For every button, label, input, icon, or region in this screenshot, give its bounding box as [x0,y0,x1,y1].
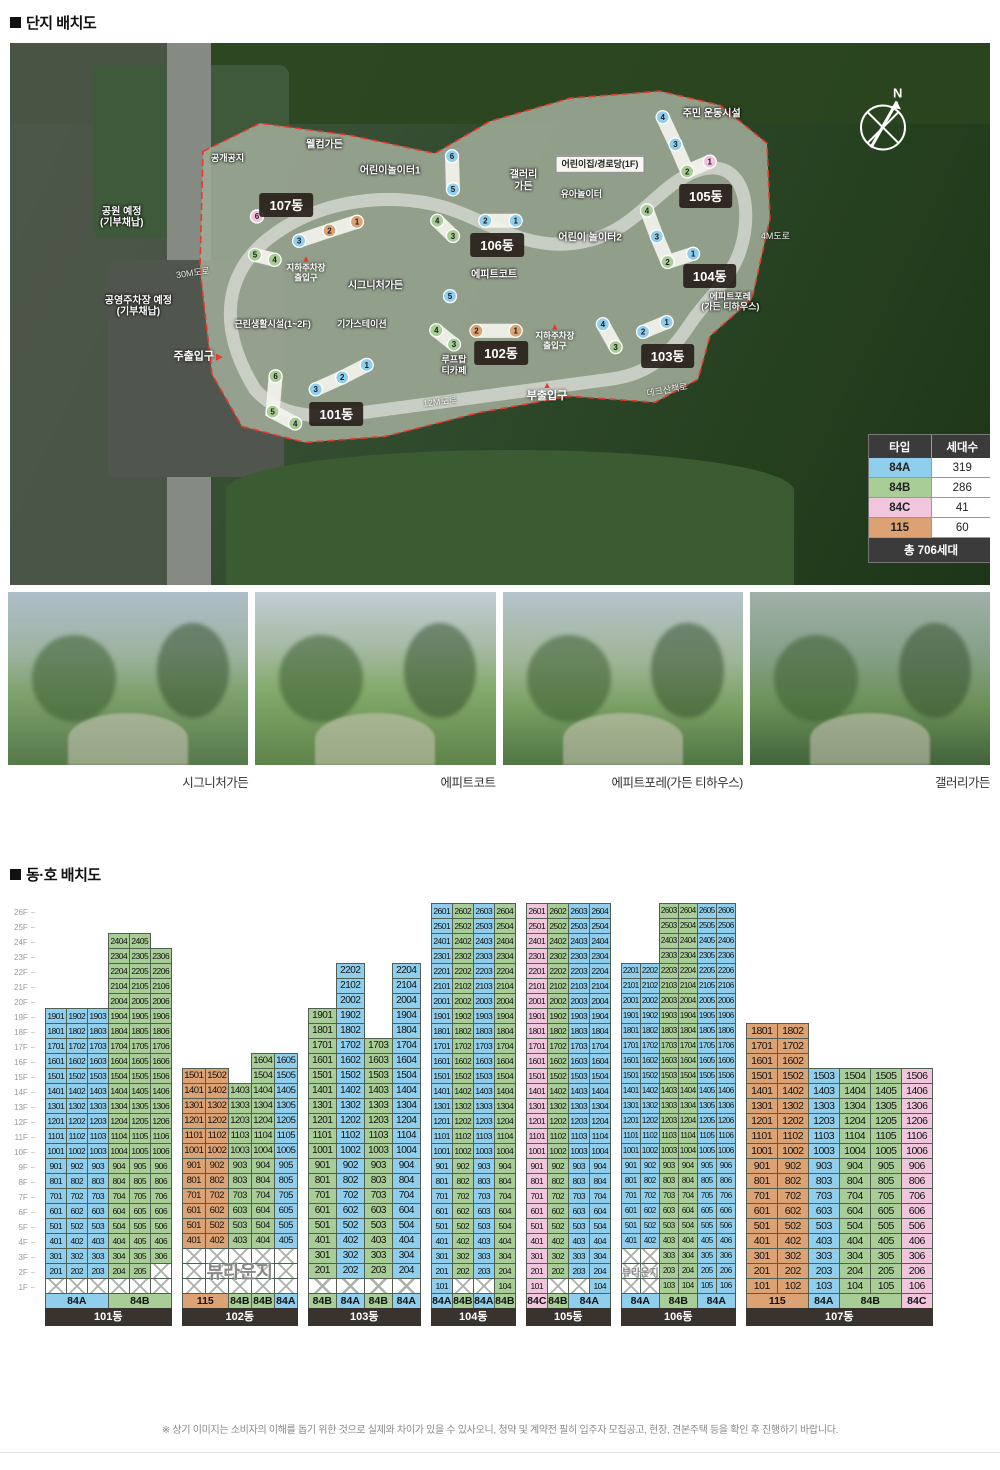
unit-cell: 1901 [526,1008,548,1024]
unit-cell: 301 [308,1248,337,1264]
unit-cell: 602 [547,1203,569,1219]
unit-cell: 1402 [336,1083,365,1099]
unit-cell: 1803 [473,1023,495,1039]
unit-cell: 1706 [716,1038,736,1054]
unit-cell: 1202 [547,1113,569,1129]
unit-cell: 803 [808,1173,840,1189]
unit-cell: 1106 [150,1128,172,1144]
unit-cell: 806 [716,1173,736,1189]
unit-cell: 1201 [45,1113,67,1129]
unit-cell: 1304 [108,1098,130,1114]
unit-cell: 1504 [251,1068,275,1084]
map-overlay-svg: 12365454321432143214321654321632154 [10,43,990,585]
unit-cell: 1904 [392,1008,421,1024]
unit-cell: 302 [452,1248,474,1264]
unit-cell: 1801 [526,1023,548,1039]
unit-cell: 1006 [901,1143,933,1159]
floor-axis-label: 16F [14,1055,35,1070]
svg-text:1: 1 [691,250,696,259]
svg-text:2: 2 [641,328,646,337]
unit-cell: 2504 [678,918,698,934]
unit-cell: 1503 [364,1068,393,1084]
unit-cell: 1802 [452,1023,474,1039]
unit-cell: 2004 [678,993,698,1009]
unit-cell: 905 [129,1158,151,1174]
unit-cell: 404 [589,1233,611,1249]
unit-cell: 501 [45,1218,67,1234]
unit-cell: 2503 [473,918,495,934]
empty-cell [870,1053,902,1069]
unit-cell: 202 [452,1263,474,1279]
unit-cell: 706 [901,1188,933,1204]
unit-cell: 303 [473,1248,495,1264]
unit-cell: 903 [364,1158,393,1174]
svg-text:3: 3 [297,237,302,246]
unit-cell: 1605 [697,1053,717,1069]
building-stack-106동: 2603260426052606250325042505250624032404… [621,903,736,1326]
unit-cell: 1601 [621,1053,641,1069]
unit-cell: 2002 [547,993,569,1009]
unit-cell: 802 [205,1173,229,1189]
unit-cell: 802 [777,1173,809,1189]
svg-text:1: 1 [513,217,518,226]
unit-cell: 1003 [808,1143,840,1159]
unit-cell: 1504 [678,1068,698,1084]
unit-cell: 1804 [108,1023,130,1039]
unit-cell: 1402 [66,1083,88,1099]
unit-cell: 1702 [452,1038,474,1054]
legend-total: 총 706세대 [869,537,990,562]
unit-cell: 304 [678,1248,698,1264]
empty-cell [66,993,88,1009]
unit-cell: 601 [308,1203,337,1219]
unit-cell: 1303 [228,1098,252,1114]
unit-cell: 2103 [659,978,679,994]
unit-cell: 1204 [678,1113,698,1129]
unit-cell: 1604 [392,1053,421,1069]
unit-cell: 802 [547,1173,569,1189]
unit-cell: 602 [777,1203,809,1219]
unit-cell: 1803 [568,1023,590,1039]
unit-cell: 402 [777,1233,809,1249]
unit-cell: 506 [716,1218,736,1234]
unit-cell: 803 [228,1173,252,1189]
building-badge-107동: 107동 [260,193,314,217]
unit-cell: 505 [870,1218,902,1234]
unit-cell: 1004 [392,1143,421,1159]
unit-cell: 1301 [526,1098,548,1114]
unit-cell: 1404 [494,1083,516,1099]
unit-cell: 1406 [150,1083,172,1099]
unit-cell: 903 [808,1158,840,1174]
unit-cell: 1701 [746,1038,778,1054]
unit-cell: 705 [870,1188,902,1204]
empty-cell [87,933,109,949]
photo-captions: 시그니처가든 에피트코트 에피트포레(가든 티하우스) 갤러리가든 [8,772,990,791]
unit-cell: 1803 [659,1023,679,1039]
unit-cell: 403 [659,1233,679,1249]
unit-cell: 803 [568,1173,590,1189]
unit-cell: 1504 [839,1068,871,1084]
unit-cell: 1404 [108,1083,130,1099]
empty-cell [182,1053,206,1069]
unit-cell: 902 [336,1158,365,1174]
unit-cell: 2104 [589,978,611,994]
unit-cell: 403 [364,1233,393,1249]
floor-axis-label: 25F [14,920,35,935]
unit-cell: 2301 [526,948,548,964]
unit-cell: 302 [547,1248,569,1264]
section-title-unit-layout: 동·호 배치도 [10,864,101,885]
floor-axis-label: 17F [14,1040,35,1055]
photo-efete-foret [503,592,743,765]
unit-cell: 804 [589,1173,611,1189]
unit-cell: 901 [308,1158,337,1174]
unit-cell: 604 [839,1203,871,1219]
unit-cell: 1505 [274,1068,298,1084]
unit-cell: 1401 [308,1083,337,1099]
unit-cell: 1902 [547,1008,569,1024]
unit-cell: 1203 [808,1113,840,1129]
unit-cell: 2402 [452,933,474,949]
unit-cell: 1801 [45,1023,67,1039]
unit-cell: 806 [150,1173,172,1189]
unit-cell: 1802 [66,1023,88,1039]
unit-cell: 1005 [274,1143,298,1159]
empty-cell [66,963,88,979]
unit-cell: 802 [640,1173,660,1189]
empty-cell [808,1023,840,1039]
unit-cell: 705 [129,1188,151,1204]
unit-cell: 1502 [640,1068,660,1084]
unit-cell: 803 [87,1173,109,1189]
unit-cell: 604 [678,1203,698,1219]
unit-cell: 1203 [87,1113,109,1129]
unit-cell: 201 [526,1263,548,1279]
unit-cell: 405 [129,1233,151,1249]
unit-cell: 1501 [182,1068,206,1084]
unit-cell: 1301 [45,1098,67,1114]
unit-cell: 1001 [431,1143,453,1159]
unit-cell: 501 [431,1218,453,1234]
unit-cell: 702 [205,1188,229,1204]
unit-cell: 1206 [150,1113,172,1129]
unit-cell: 1903 [87,1008,109,1024]
unit-cell: 1102 [640,1128,660,1144]
hatch-cell [150,1263,172,1279]
unit-cell: 1201 [621,1113,641,1129]
legend-count-cell: 41 [931,498,991,517]
unit-cell: 1804 [678,1023,698,1039]
unit-cell: 1502 [547,1068,569,1084]
floor-axis-label: 15F [14,1070,35,1085]
unit-cell: 1003 [228,1143,252,1159]
unit-cell: 603 [87,1203,109,1219]
svg-text:4: 4 [272,256,277,265]
unit-cell: 1001 [45,1143,67,1159]
unit-cell: 1305 [697,1098,717,1114]
empty-cell [640,918,660,934]
unit-cell: 2604 [678,903,698,919]
unit-cell: 704 [392,1188,421,1204]
empty-cell [364,978,393,994]
unit-cell: 103 [808,1278,840,1294]
building-name-bar: 102동 [182,1308,298,1326]
unit-cell: 1204 [589,1113,611,1129]
unit-cell: 1602 [547,1053,569,1069]
unit-cell: 2101 [526,978,548,994]
empty-cell [45,933,67,949]
unit-cell: 2204 [678,963,698,979]
unit-cell: 1804 [494,1023,516,1039]
empty-cell [870,1023,902,1039]
unit-cell: 402 [640,1233,660,1249]
unit-cell: 405 [697,1233,717,1249]
empty-cell [45,948,67,964]
unit-cell: 1206 [901,1113,933,1129]
unit-cell: 603 [659,1203,679,1219]
hatch-cell [87,1278,109,1294]
unit-cell: 1704 [589,1038,611,1054]
unit-cell: 404 [678,1233,698,1249]
unit-cell: 1802 [336,1023,365,1039]
unit-cell: 1404 [392,1083,421,1099]
type-label: 84A [473,1293,495,1309]
type-label: 84A [697,1293,736,1309]
unit-cell: 1301 [431,1098,453,1114]
floor-axis: 26F25F24F23F22F21F20F19F18F17F16F15F14F1… [14,905,35,1295]
unit-cell: 703 [808,1188,840,1204]
unit-cell: 1204 [251,1113,275,1129]
type-label: 84B [108,1293,172,1309]
unit-cell: 304 [494,1248,516,1264]
unit-cell: 1401 [182,1083,206,1099]
svg-text:3: 3 [451,232,456,241]
svg-text:2: 2 [474,327,479,336]
unit-cell: 2504 [589,918,611,934]
unit-cell: 802 [452,1173,474,1189]
unit-cell: 1202 [452,1113,474,1129]
unit-cell: 1202 [205,1113,229,1129]
unit-cell: 1204 [108,1113,130,1129]
unit-cell: 501 [526,1218,548,1234]
unit-cell: 2604 [494,903,516,919]
unit-cell: 2106 [150,978,172,994]
unit-cell: 1102 [547,1128,569,1144]
unit-cell: 1404 [251,1083,275,1099]
unit-cell: 903 [568,1158,590,1174]
unit-cell: 1002 [336,1143,365,1159]
unit-cell: 1404 [839,1083,871,1099]
unit-cell: 305 [870,1248,902,1264]
unit-cell: 2105 [129,978,151,994]
type-label: 84B [228,1293,252,1309]
unit-cell: 903 [228,1158,252,1174]
unit-cell: 106 [901,1278,933,1294]
unit-cell: 1006 [716,1143,736,1159]
unit-cell: 1803 [87,1023,109,1039]
unit-cell: 1601 [431,1053,453,1069]
unit-cell: 1004 [108,1143,130,1159]
site-plan-map: 12365454321432143214321654321632154 N 타입… [10,43,990,585]
unit-cell: 1701 [621,1038,641,1054]
unit-cell: 904 [108,1158,130,1174]
svg-text:4: 4 [434,326,439,335]
building-name-bar: 104동 [431,1308,516,1326]
unit-cell: 401 [182,1233,206,1249]
unit-cell: 502 [336,1218,365,1234]
unit-cell: 601 [182,1203,206,1219]
unit-cell: 1701 [431,1038,453,1054]
type-label: 84B [547,1293,569,1309]
unit-cell: 901 [526,1158,548,1174]
unit-cell: 105 [697,1278,717,1294]
unit-cell: 2004 [589,993,611,1009]
empty-cell [228,1053,252,1069]
footer-divider [0,1452,1000,1453]
unit-cell: 903 [87,1158,109,1174]
unit-cell: 1003 [87,1143,109,1159]
bullet-square-icon [10,17,21,28]
unit-cell: 501 [308,1218,337,1234]
unit-cell: 1406 [716,1083,736,1099]
unit-cell: 1503 [87,1068,109,1084]
unit-cell: 104 [678,1278,698,1294]
unit-cell: 2603 [568,903,590,919]
unit-cell: 604 [251,1203,275,1219]
unit-cell: 2302 [547,948,569,964]
empty-cell [870,1038,902,1054]
legend-header-row: 타입 세대수 [869,435,990,458]
unit-cell: 1202 [640,1113,660,1129]
type-label: 115 [746,1293,809,1309]
unit-cell: 2003 [659,993,679,1009]
unit-cell: 303 [364,1248,393,1264]
legend-header-type: 타입 [869,435,931,458]
legend-row: 84B286 [869,477,990,497]
unit-type-legend: 타입 세대수 84A31984B28684C4111560 총 706세대 [868,434,990,563]
unit-cell: 2601 [431,903,453,919]
unit-cell: 1104 [494,1128,516,1144]
unit-cell: 1305 [129,1098,151,1114]
unit-cell: 1306 [901,1098,933,1114]
unit-cell: 1106 [716,1128,736,1144]
unit-cell: 2104 [392,978,421,994]
unit-cell: 2006 [716,993,736,1009]
unit-cell: 1204 [392,1113,421,1129]
floor-axis-label: 8F [18,1175,34,1190]
unit-cell: 404 [839,1233,871,1249]
unit-cell: 306 [901,1248,933,1264]
unit-cell: 1905 [129,1008,151,1024]
unit-cell: 1702 [547,1038,569,1054]
unit-cell: 2005 [697,993,717,1009]
unit-cell: 804 [678,1173,698,1189]
unit-cell: 1305 [274,1098,298,1114]
unit-cell: 702 [640,1188,660,1204]
unit-cell: 1203 [364,1113,393,1129]
unit-cell: 402 [205,1233,229,1249]
unit-cell: 304 [589,1248,611,1264]
unit-cell: 2204 [589,963,611,979]
unit-cell: 501 [621,1218,641,1234]
unit-cell: 901 [431,1158,453,1174]
unit-cell: 1705 [129,1038,151,1054]
unit-cell: 502 [777,1218,809,1234]
unit-cell: 106 [716,1278,736,1294]
unit-cell: 1201 [308,1113,337,1129]
unit-cell: 603 [473,1203,495,1219]
unit-cell: 804 [251,1173,275,1189]
unit-cell: 805 [870,1173,902,1189]
type-label: 84B [251,1293,275,1309]
svg-text:1: 1 [664,318,669,327]
unit-cell: 1702 [66,1038,88,1054]
unit-cell: 1903 [568,1008,590,1024]
unit-cell: 1703 [364,1038,393,1054]
unit-cell: 405 [870,1233,902,1249]
unit-cell: 1002 [66,1143,88,1159]
unit-cell: 904 [839,1158,871,1174]
unit-cell: 2006 [150,993,172,1009]
unit-cell: 1204 [494,1113,516,1129]
svg-text:6: 6 [273,372,278,381]
empty-cell [364,993,393,1009]
unit-cell: 1601 [308,1053,337,1069]
svg-text:2: 2 [327,226,332,235]
unit-cell: 701 [431,1188,453,1204]
legend-rows: 84A31984B28684C4111560 [869,458,990,537]
empty-cell [839,1053,871,1069]
unit-cell: 1703 [87,1038,109,1054]
unit-cell: 406 [901,1233,933,1249]
unit-cell: 1806 [716,1023,736,1039]
unit-cell: 801 [746,1173,778,1189]
unit-cell: 706 [716,1188,736,1204]
unit-cell: 1501 [621,1068,641,1084]
unit-cell: 2002 [640,993,660,1009]
empty-cell [640,903,660,919]
unit-cell: 606 [150,1203,172,1219]
unit-cell: 303 [87,1248,109,1264]
unit-cell: 402 [452,1233,474,1249]
unit-cell: 906 [150,1158,172,1174]
unit-cell: 202 [336,1263,365,1279]
unit-cell: 1101 [746,1128,778,1144]
floor-axis-label: 26F [14,905,35,920]
section2-title-text: 동·호 배치도 [26,864,101,885]
photo-signature-garden [8,592,248,765]
unit-cell: 1501 [45,1068,67,1084]
unit-cell: 402 [336,1233,365,1249]
unit-cell: 601 [621,1203,641,1219]
unit-cell: 1402 [640,1083,660,1099]
unit-cell: 701 [308,1188,337,1204]
building-stack-101동: 2404240523042305230622042205220621042105… [45,933,172,1326]
unit-cell: 306 [150,1248,172,1264]
unit-cell: 504 [392,1218,421,1234]
empty-cell [640,948,660,964]
floor-axis-label: 13F [14,1100,35,1115]
unit-cell: 503 [659,1218,679,1234]
floor-axis-label: 2F [18,1265,34,1280]
unit-cell: 104 [589,1278,611,1294]
type-label: 84A [392,1293,421,1309]
unit-cell: 1205 [274,1113,298,1129]
unit-cell: 2501 [431,918,453,934]
unit-cell: 605 [870,1203,902,1219]
building-name-bar: 101동 [45,1308,172,1326]
